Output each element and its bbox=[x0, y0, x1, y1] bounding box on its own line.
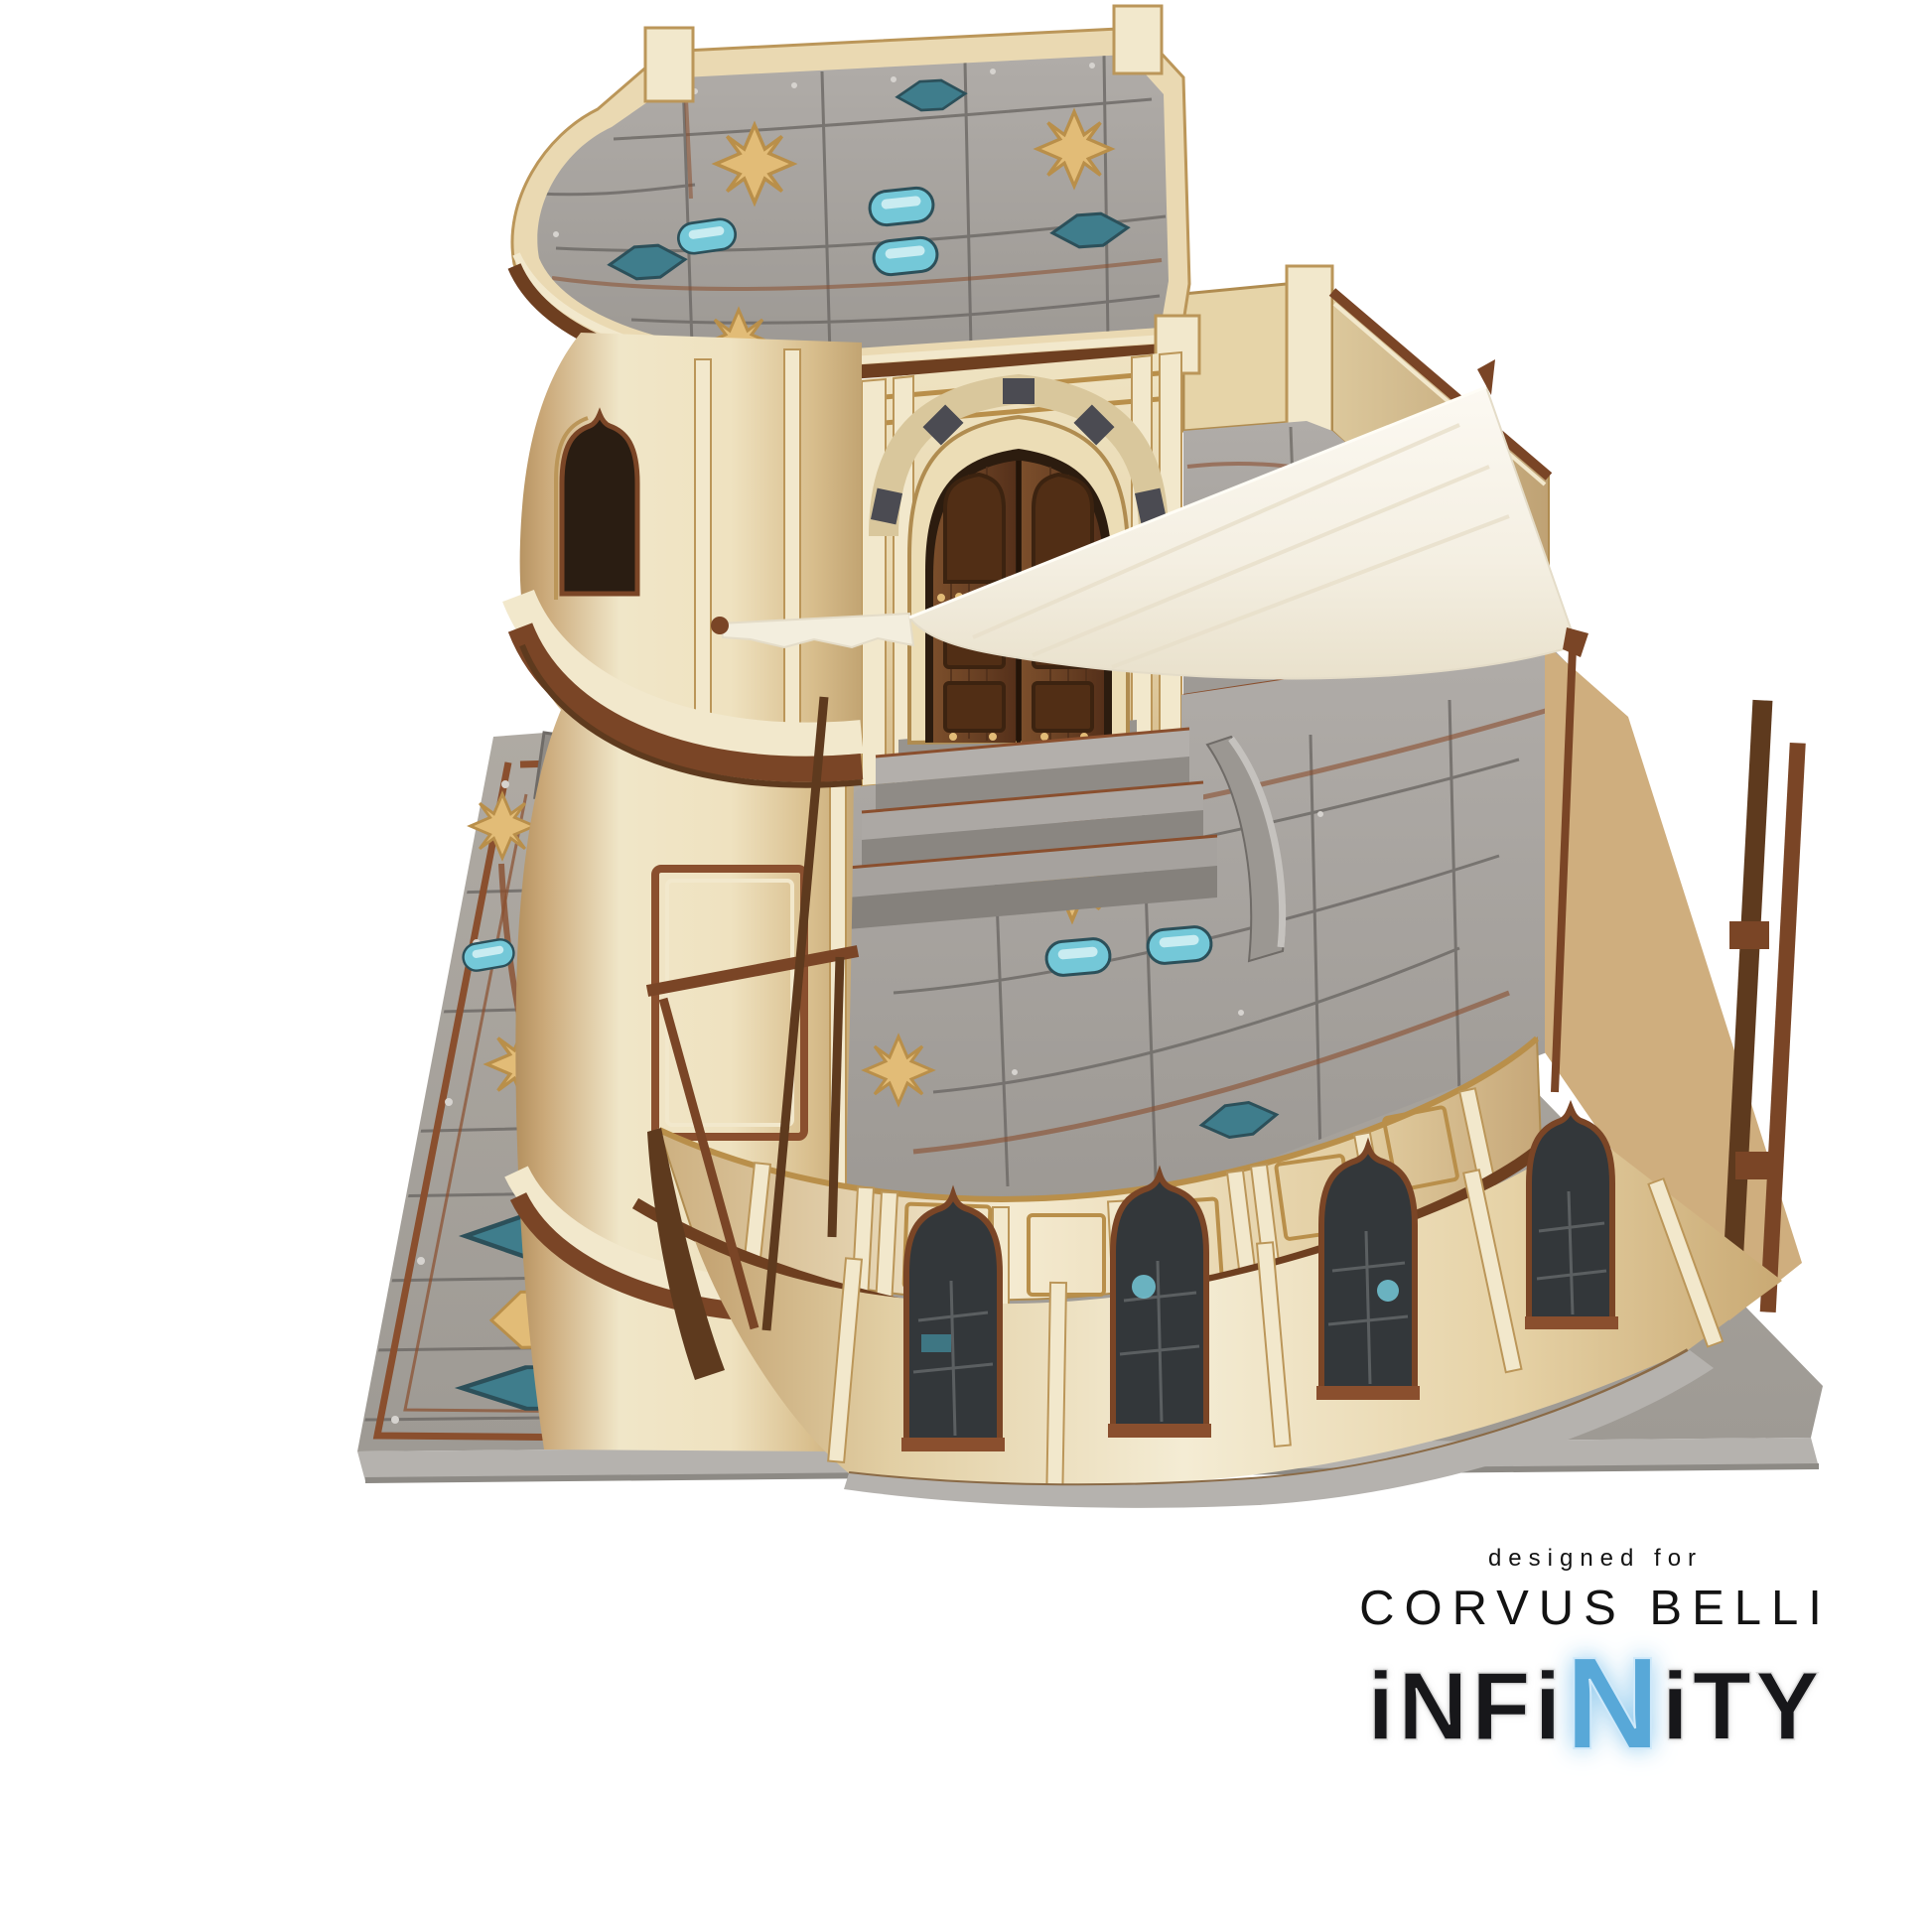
roof-corner-post-left bbox=[645, 28, 693, 101]
tower-window bbox=[556, 414, 637, 600]
roof-star-1 bbox=[716, 125, 793, 203]
awning-peg-left bbox=[711, 617, 729, 634]
stage: designed for CORVUS BELLI iNFiNiTY bbox=[0, 0, 1932, 1932]
roof-corner-post-right bbox=[1114, 6, 1162, 73]
bay-window-2 bbox=[1108, 1174, 1211, 1438]
roof-star-2 bbox=[1037, 112, 1112, 187]
corner-post-back bbox=[1287, 266, 1332, 433]
roof-light-pair-a bbox=[868, 187, 934, 227]
logo-pre: iNFi bbox=[1367, 1652, 1565, 1760]
batten-clamp-1 bbox=[1729, 921, 1769, 949]
infinity-logo: iNFiNiTY bbox=[1314, 1638, 1876, 1769]
floor-light-pair-a bbox=[1045, 937, 1112, 976]
roof-light-pair-b bbox=[872, 236, 938, 277]
base-star-1 bbox=[471, 794, 535, 859]
bay-window-3 bbox=[1316, 1147, 1420, 1400]
brand-company: CORVUS BELLI bbox=[1314, 1581, 1876, 1636]
logo-post: iTY bbox=[1662, 1652, 1824, 1760]
brand-block: designed for CORVUS BELLI iNFiNiTY bbox=[1314, 1545, 1876, 1769]
floor-light-pair-b bbox=[1147, 925, 1213, 964]
bay-window-4 bbox=[1525, 1108, 1618, 1329]
roof-block bbox=[512, 6, 1199, 377]
awning-peg-right bbox=[1563, 627, 1588, 657]
brand-tagline: designed for bbox=[1314, 1545, 1876, 1573]
bay-window-1 bbox=[901, 1194, 1005, 1451]
batten-clamp-2 bbox=[1735, 1152, 1775, 1179]
floor-star-2 bbox=[865, 1036, 932, 1104]
logo-accent: N bbox=[1565, 1630, 1661, 1776]
